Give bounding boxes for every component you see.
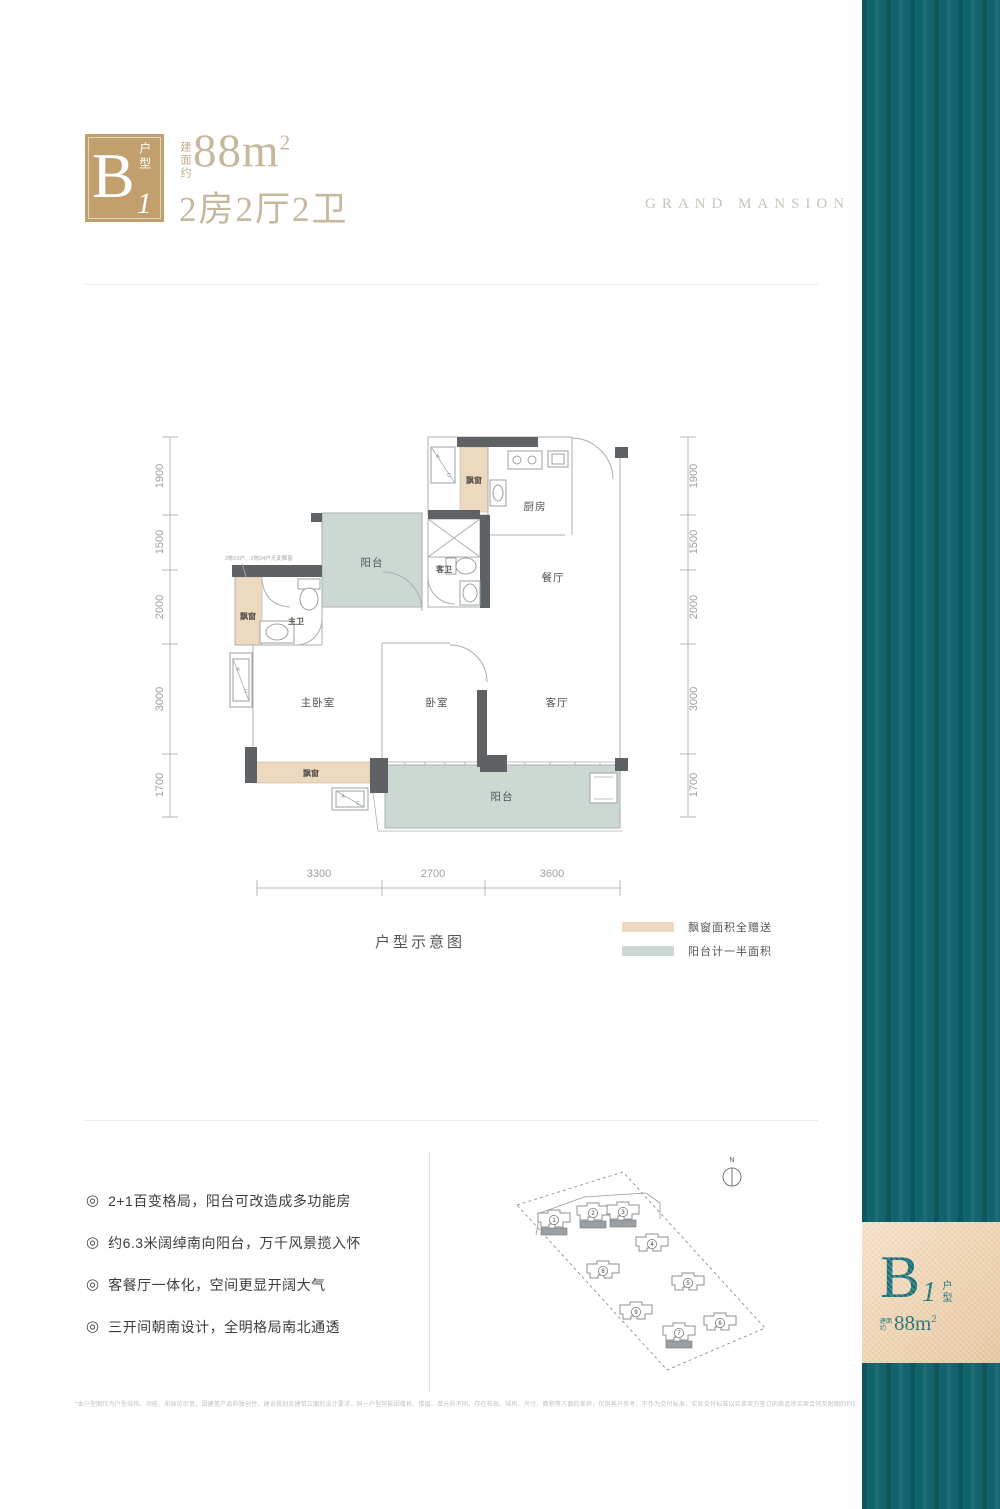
room-label-kitchen: 厨房 bbox=[524, 500, 547, 513]
room-label-master-bath: 主卫 bbox=[288, 616, 304, 626]
legend-swatch-bay-window bbox=[622, 922, 674, 932]
feature-item: ◎ 三开间朝南设计，全明格局南北通透 bbox=[86, 1318, 426, 1336]
legend-row-bay-window: 飘窗面积全赠送 bbox=[622, 921, 772, 933]
dim-right-2: 1500 bbox=[688, 530, 700, 554]
ac-letter-c2: C bbox=[244, 689, 248, 695]
legend: 飘窗面积全赠送 阳台计一半面积 bbox=[622, 921, 772, 969]
dim-bottom-3: 3600 bbox=[540, 868, 564, 880]
building-marker-1: 1 bbox=[538, 1210, 570, 1235]
area-value: 88m2 bbox=[193, 124, 291, 178]
floorplan-caption: 户型示意图 bbox=[300, 931, 540, 952]
area-prefix: 建面约 bbox=[177, 141, 193, 180]
legend-label-bay-window: 飘窗面积全赠送 bbox=[688, 919, 772, 935]
badge-number: 1 bbox=[922, 1280, 936, 1306]
area-value-number: 88m bbox=[193, 125, 280, 177]
dim-left-5: 1700 bbox=[154, 773, 166, 797]
floorplan-drawing: A C A C A C 厨房 餐厅 客厅 卧室 主卧室 阳台 阳台 客卫 主卫 … bbox=[150, 425, 710, 900]
room-label-balcony-bottom: 阳台 bbox=[491, 790, 514, 803]
dim-left-2: 1500 bbox=[154, 530, 166, 554]
dim-right-3: 2000 bbox=[688, 595, 700, 619]
feature-text: 2+1百变格局，阳台可改造成多功能房 bbox=[108, 1192, 351, 1210]
building-marker-8: 8 bbox=[587, 1261, 619, 1278]
badge-suffix: 户型 bbox=[938, 1280, 953, 1304]
bullet-icon: ◎ bbox=[86, 1318, 99, 1336]
area-value-exponent: 2 bbox=[280, 130, 292, 154]
feature-text: 三开间朝南设计，全明格局南北通透 bbox=[108, 1318, 340, 1336]
north-compass: N bbox=[723, 1157, 741, 1186]
dim-right-1: 1900 bbox=[688, 464, 700, 488]
bay-window-label-kitchen: 飘窗 bbox=[466, 475, 482, 485]
unit-logo: B 户型 1 bbox=[85, 134, 164, 222]
ac-letter-c: C bbox=[447, 473, 451, 479]
room-label-living: 客厅 bbox=[546, 696, 569, 709]
badge-area-value: 88m2 bbox=[894, 1310, 937, 1333]
room-label-balcony-top: 阳台 bbox=[361, 556, 384, 569]
building-marker-5: 5 bbox=[672, 1273, 704, 1290]
bullet-icon: ◎ bbox=[86, 1192, 99, 1210]
dim-right-4: 3000 bbox=[688, 687, 700, 711]
unit-logo-number: 1 bbox=[137, 190, 154, 218]
corner-unit-badge: B 1 户型 建面约 88m2 bbox=[862, 1222, 1000, 1363]
unit-logo-suffix: 户型 bbox=[137, 142, 154, 172]
dim-left-1: 1900 bbox=[154, 464, 166, 488]
legend-swatch-balcony bbox=[622, 946, 674, 956]
dim-left-3: 2000 bbox=[154, 595, 166, 619]
building-marker-9: 9 bbox=[620, 1302, 652, 1319]
north-label: N bbox=[729, 1157, 734, 1164]
building-marker-6: 6 bbox=[704, 1313, 736, 1330]
feature-item: ◎ 2+1百变格局，阳台可改造成多功能房 bbox=[86, 1192, 426, 1210]
dim-right-5: 1700 bbox=[688, 773, 700, 797]
bay-window-note: 2栋03户、2栋04户无此飘窗 bbox=[225, 554, 293, 562]
feature-list: ◎ 2+1百变格局，阳台可改造成多功能房 ◎ 约6.3米阔绰南向阳台，万千风景揽… bbox=[86, 1192, 426, 1360]
dim-bottom-2: 2700 bbox=[421, 868, 445, 880]
room-label-guest-bath: 客卫 bbox=[435, 564, 452, 574]
divider-bottom bbox=[85, 1120, 818, 1121]
corner-unit-badge-inner: B 1 户型 建面约 88m2 bbox=[880, 1248, 953, 1333]
unit-logo-column: 户型 1 bbox=[135, 134, 154, 222]
feature-text: 客餐厅一体化，空间更显开阔大气 bbox=[108, 1276, 326, 1294]
building-marker-4: 4 bbox=[636, 1234, 668, 1251]
building-marker-2: 2 bbox=[577, 1203, 609, 1228]
room-label-dining: 餐厅 bbox=[542, 571, 565, 584]
bullet-icon: ◎ bbox=[86, 1234, 99, 1252]
room-label-bedroom: 卧室 bbox=[426, 696, 449, 709]
feature-item: ◎ 客餐厅一体化，空间更显开阔大气 bbox=[86, 1276, 426, 1294]
divider-vertical bbox=[429, 1152, 430, 1392]
feature-item: ◎ 约6.3米阔绰南向阳台，万千风景揽入怀 bbox=[86, 1234, 426, 1252]
divider-top bbox=[85, 284, 818, 285]
legend-label-balcony: 阳台计一半面积 bbox=[688, 943, 772, 959]
bay-window-label-masterbath: 飘窗 bbox=[240, 611, 256, 621]
layout-line: 2房2厅2卫 bbox=[179, 181, 349, 232]
page: B 户型 1 建面约 88m2 2房2厅2卫 GRAND MANSION bbox=[0, 0, 1000, 1509]
badge-area-prefix: 建面约 bbox=[880, 1319, 894, 1333]
unit-logo-letter: B bbox=[85, 134, 135, 222]
bullet-icon: ◎ bbox=[86, 1276, 99, 1294]
dim-bottom-1: 3300 bbox=[307, 868, 331, 880]
dim-left-4: 3000 bbox=[154, 687, 166, 711]
building-marker-3: 3 bbox=[607, 1202, 639, 1227]
feature-text: 约6.3米阔绰南向阳台，万千风景揽入怀 bbox=[108, 1234, 361, 1252]
disclaimer-text: *本户型图仅为户型结构、功能、布局的示意。因建筑产品的独创性、建设规划及建筑立面… bbox=[75, 1399, 855, 1408]
room-label-master-bedroom: 主卧室 bbox=[301, 696, 336, 709]
ac-letter-c3: C bbox=[356, 801, 360, 807]
badge-letter: B bbox=[880, 1248, 920, 1306]
building-marker-7: 7 bbox=[663, 1323, 695, 1348]
legend-row-balcony: 阳台计一半面积 bbox=[622, 945, 772, 957]
brand-name: GRAND MANSION bbox=[645, 196, 850, 213]
site-plan: N 1 2 3 4 8 5 bbox=[480, 1145, 810, 1395]
bay-window-label-bottom: 飘窗 bbox=[303, 768, 319, 778]
bay-window-masterbath-area bbox=[235, 577, 262, 645]
